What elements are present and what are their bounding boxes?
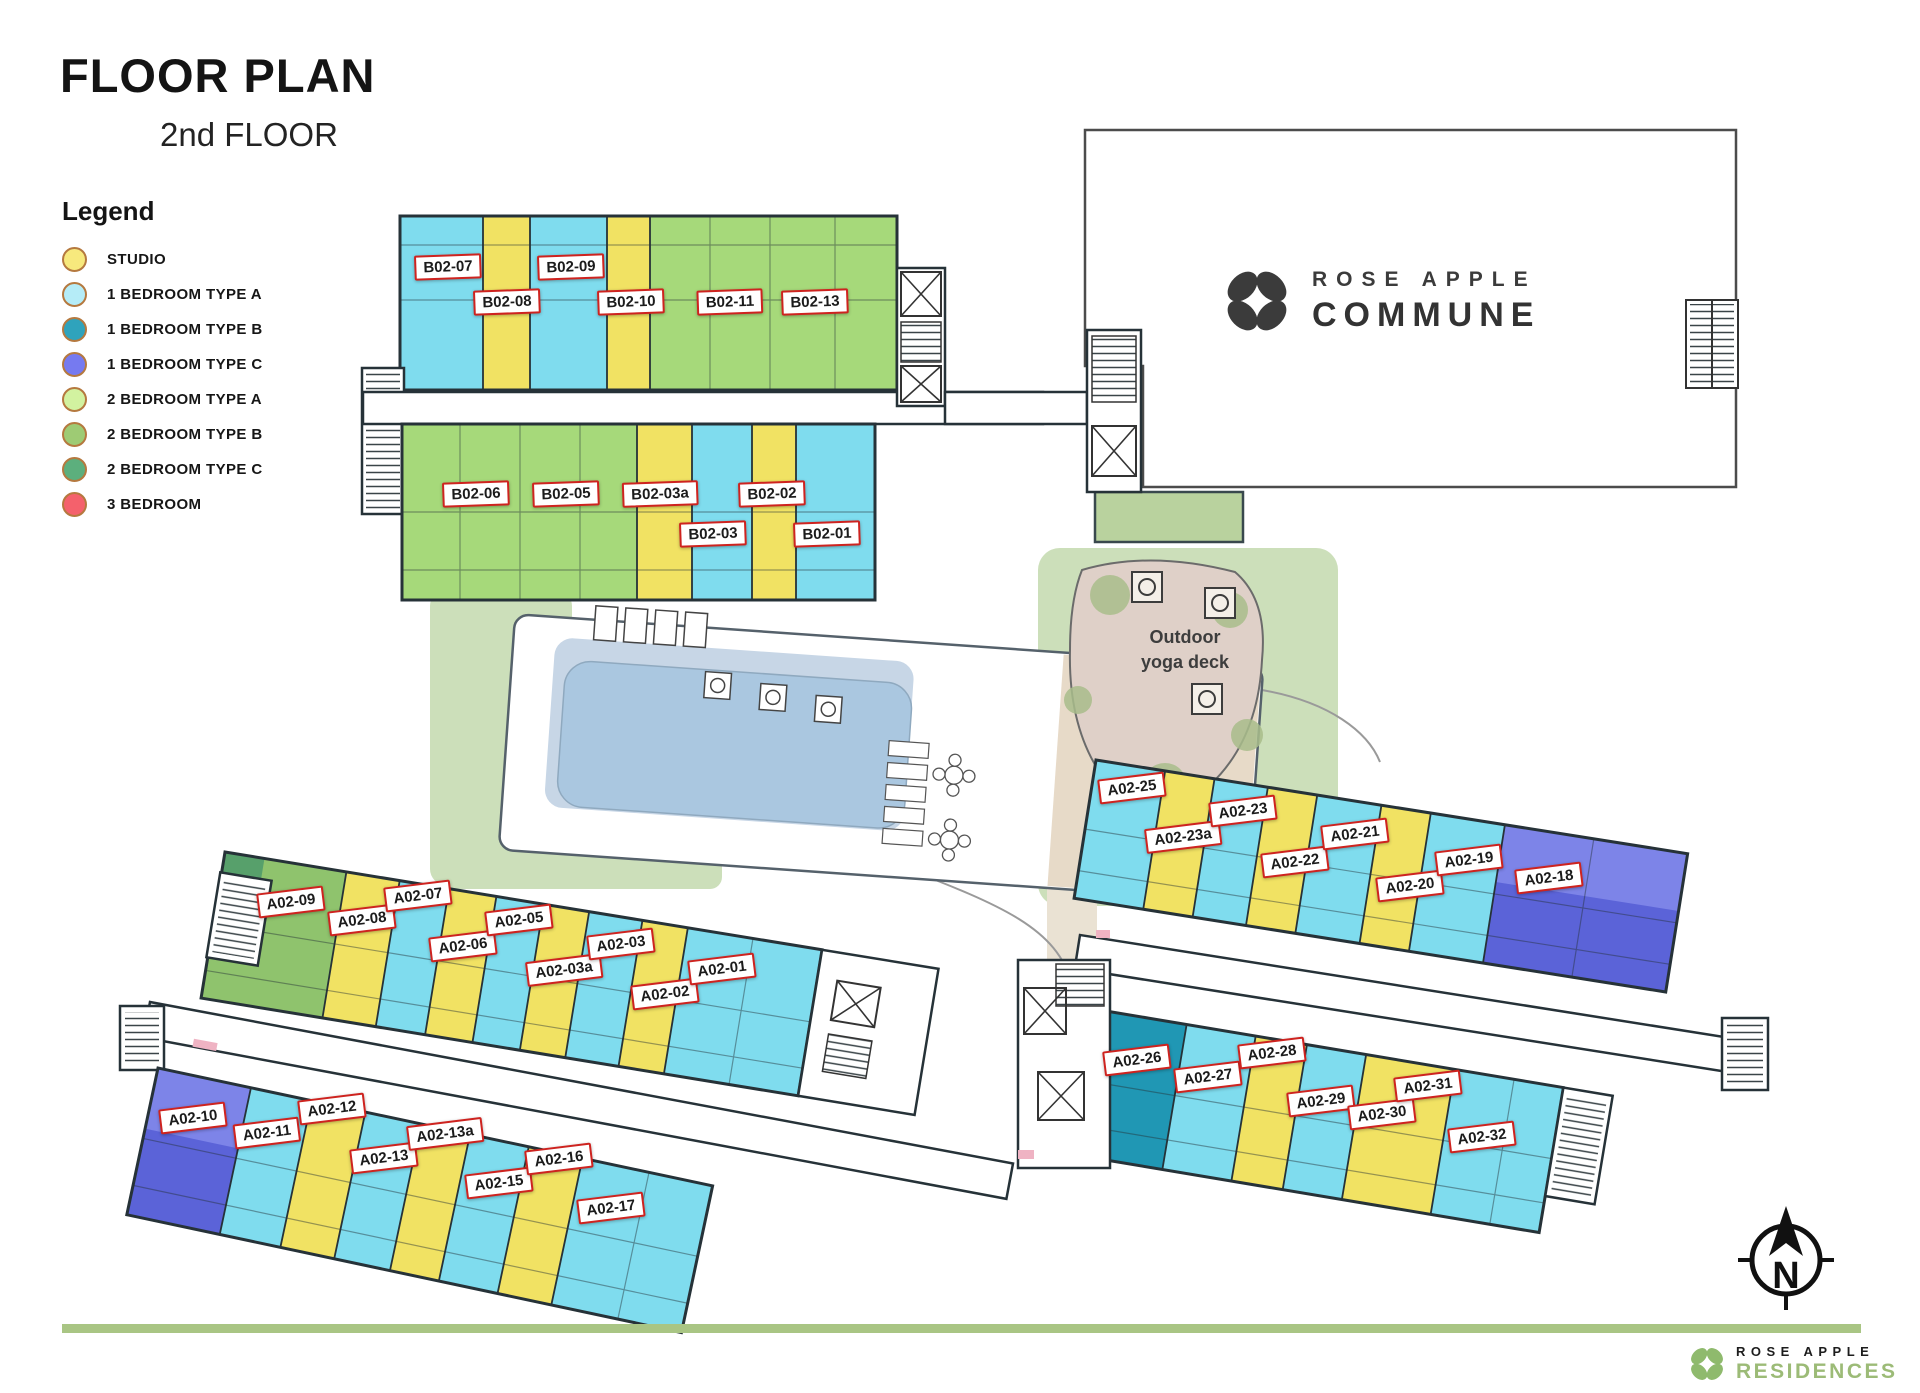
unit-label-a02-26: A02-26: [1102, 1043, 1172, 1076]
unit-label-a02-12: A02-12: [297, 1092, 367, 1125]
unit-label-a02-10: A02-10: [158, 1101, 228, 1134]
unit-label-a02-23: A02-23: [1208, 794, 1278, 827]
unit-label-a02-21: A02-21: [1320, 817, 1390, 850]
unit-label-a02-16: A02-16: [524, 1142, 594, 1175]
unit-label-b02-08: B02-08: [473, 288, 541, 315]
unit-label-b02-06: B02-06: [442, 480, 510, 507]
footer-brand: ROSE APPLE RESIDENCES: [1688, 1344, 1898, 1384]
unit-label-a02-22: A02-22: [1260, 845, 1330, 878]
footer-brand-line2: RESIDENCES: [1736, 1360, 1898, 1384]
north-compass-icon: N: [1726, 1196, 1846, 1323]
unit-label-layer: B02-07B02-08B02-09B02-10B02-11B02-13B02-…: [0, 0, 1920, 1393]
unit-label-b02-11: B02-11: [696, 288, 763, 315]
unit-label-a02-15: A02-15: [464, 1166, 534, 1199]
clover-green-icon: [1688, 1345, 1726, 1383]
unit-label-b02-10: B02-10: [597, 288, 665, 315]
floor-plan-page: FLOOR PLAN 2nd FLOOR Legend STUDIO 1 BED…: [0, 0, 1920, 1393]
unit-label-a02-03: A02-03: [586, 927, 656, 960]
footer-brand-line1: ROSE APPLE: [1736, 1344, 1898, 1359]
unit-label-b02-02: B02-02: [738, 480, 806, 507]
unit-label-b02-05: B02-05: [532, 480, 600, 507]
unit-label-a02-18: A02-18: [1514, 861, 1584, 894]
unit-label-b02-01: B02-01: [793, 520, 861, 547]
unit-label-a02-09: A02-09: [256, 885, 326, 918]
unit-label-a02-07: A02-07: [383, 879, 453, 912]
unit-label-b02-03: B02-03: [679, 520, 747, 547]
footer-divider-bar: [62, 1324, 1861, 1333]
unit-label-a02-27: A02-27: [1173, 1060, 1243, 1093]
unit-label-a02-13a: A02-13a: [406, 1117, 484, 1151]
unit-label-b02-03a: B02-03a: [622, 480, 698, 508]
unit-label-a02-30: A02-30: [1347, 1097, 1417, 1130]
unit-label-a02-28: A02-28: [1237, 1036, 1307, 1069]
unit-label-b02-13: B02-13: [781, 288, 849, 315]
unit-label-a02-29: A02-29: [1286, 1084, 1356, 1117]
unit-label-a02-20: A02-20: [1375, 869, 1445, 902]
unit-label-a02-31: A02-31: [1393, 1069, 1463, 1102]
unit-label-a02-05: A02-05: [484, 903, 554, 936]
unit-label-a02-19: A02-19: [1434, 843, 1504, 876]
compass-n-letter: N: [1772, 1255, 1799, 1297]
unit-label-a02-32: A02-32: [1447, 1120, 1517, 1153]
unit-label-a02-11: A02-11: [233, 1117, 302, 1150]
unit-label-a02-01: A02-01: [687, 952, 757, 985]
unit-label-a02-25: A02-25: [1097, 771, 1167, 804]
unit-label-b02-09: B02-09: [537, 253, 605, 280]
unit-label-b02-07: B02-07: [414, 253, 482, 280]
unit-label-a02-17: A02-17: [576, 1191, 646, 1224]
